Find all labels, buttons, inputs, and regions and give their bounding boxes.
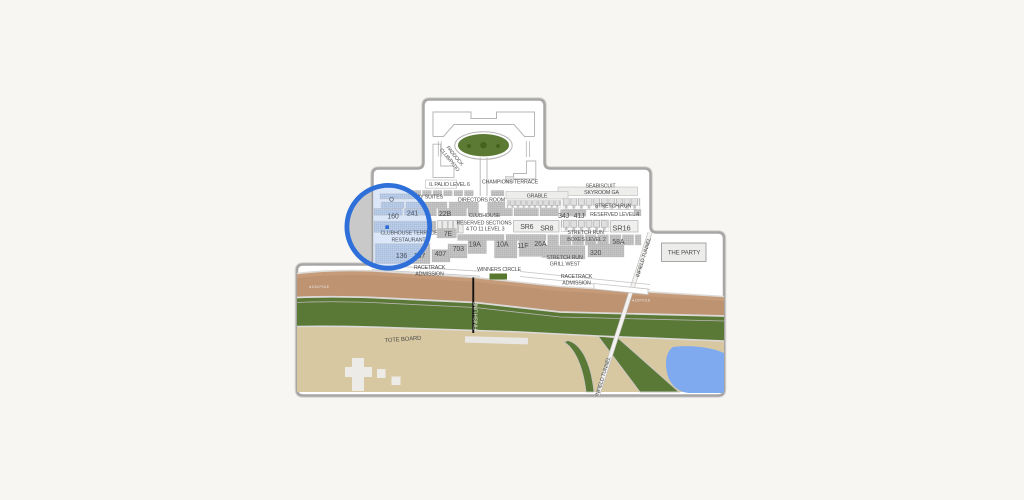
svg-text:SKYROOM GA: SKYROOM GA xyxy=(584,190,619,196)
svg-text:RACETRACK: RACETRACK xyxy=(414,265,446,271)
svg-text:IL PALIO LEVEL 6: IL PALIO LEVEL 6 xyxy=(429,182,470,188)
svg-text:ADMISSION: ADMISSION xyxy=(415,271,444,277)
svg-text:41J: 41J xyxy=(574,213,585,220)
svg-text:RESERVED SECTIONS: RESERVED SECTIONS xyxy=(456,221,512,227)
svg-text:241: 241 xyxy=(407,211,418,218)
svg-text:RESTAURANT: RESTAURANT xyxy=(391,237,426,243)
svg-text:◂ 1/8 POLE: ◂ 1/8 POLE xyxy=(632,298,651,303)
svg-text:CLUBHOUSE: CLUBHOUSE xyxy=(469,213,501,219)
svg-text:19A: 19A xyxy=(469,242,481,249)
svg-text:11F: 11F xyxy=(517,243,528,250)
svg-text:10A: 10A xyxy=(496,242,508,249)
svg-text:RESERVED LEVEL 4: RESERVED LEVEL 4 xyxy=(590,212,639,218)
svg-text:RACETRACK: RACETRACK xyxy=(561,274,593,280)
svg-text:22B: 22B xyxy=(439,211,451,218)
svg-text:FINISH LINE: FINISH LINE xyxy=(474,301,480,330)
svg-text:SR6: SR6 xyxy=(520,224,533,231)
svg-text:STRETCH RUN: STRETCH RUN xyxy=(567,230,604,236)
svg-text:703: 703 xyxy=(453,246,464,253)
svg-text:407: 407 xyxy=(435,251,446,258)
svg-text:◂ 1/16 POLE: ◂ 1/16 POLE xyxy=(309,284,330,289)
svg-text:ADMISSION: ADMISSION xyxy=(562,280,591,286)
svg-text:160: 160 xyxy=(387,214,398,221)
svg-text:4 TO 11 LEVEL 3: 4 TO 11 LEVEL 3 xyxy=(466,227,505,233)
svg-text:34J: 34J xyxy=(558,213,569,220)
svg-text:136: 136 xyxy=(396,253,407,260)
svg-text:GRILL WEST: GRILL WEST xyxy=(550,261,581,267)
svg-text:7E: 7E xyxy=(444,231,453,238)
svg-text:WINNERS CIRCLE: WINNERS CIRCLE xyxy=(477,267,521,273)
svg-text:SEABISCUIT: SEABISCUIT xyxy=(586,184,617,190)
svg-text:STRETCH RUN: STRETCH RUN xyxy=(546,255,583,261)
svg-text:58A: 58A xyxy=(612,239,624,246)
svg-text:BOXES LEVEL 2: BOXES LEVEL 2 xyxy=(567,237,606,243)
svg-text:GRABLE: GRABLE xyxy=(527,194,548,200)
svg-text:THE PARTY: THE PARTY xyxy=(668,250,700,257)
svg-text:STRETCH RUN: STRETCH RUN xyxy=(595,204,632,210)
svg-text:26A: 26A xyxy=(534,241,546,248)
svg-text:CHAMPIONS TERRACE: CHAMPIONS TERRACE xyxy=(482,180,539,186)
svg-text:SR16: SR16 xyxy=(612,223,630,232)
svg-text:320: 320 xyxy=(590,250,601,257)
svg-text:SR8: SR8 xyxy=(540,226,553,233)
